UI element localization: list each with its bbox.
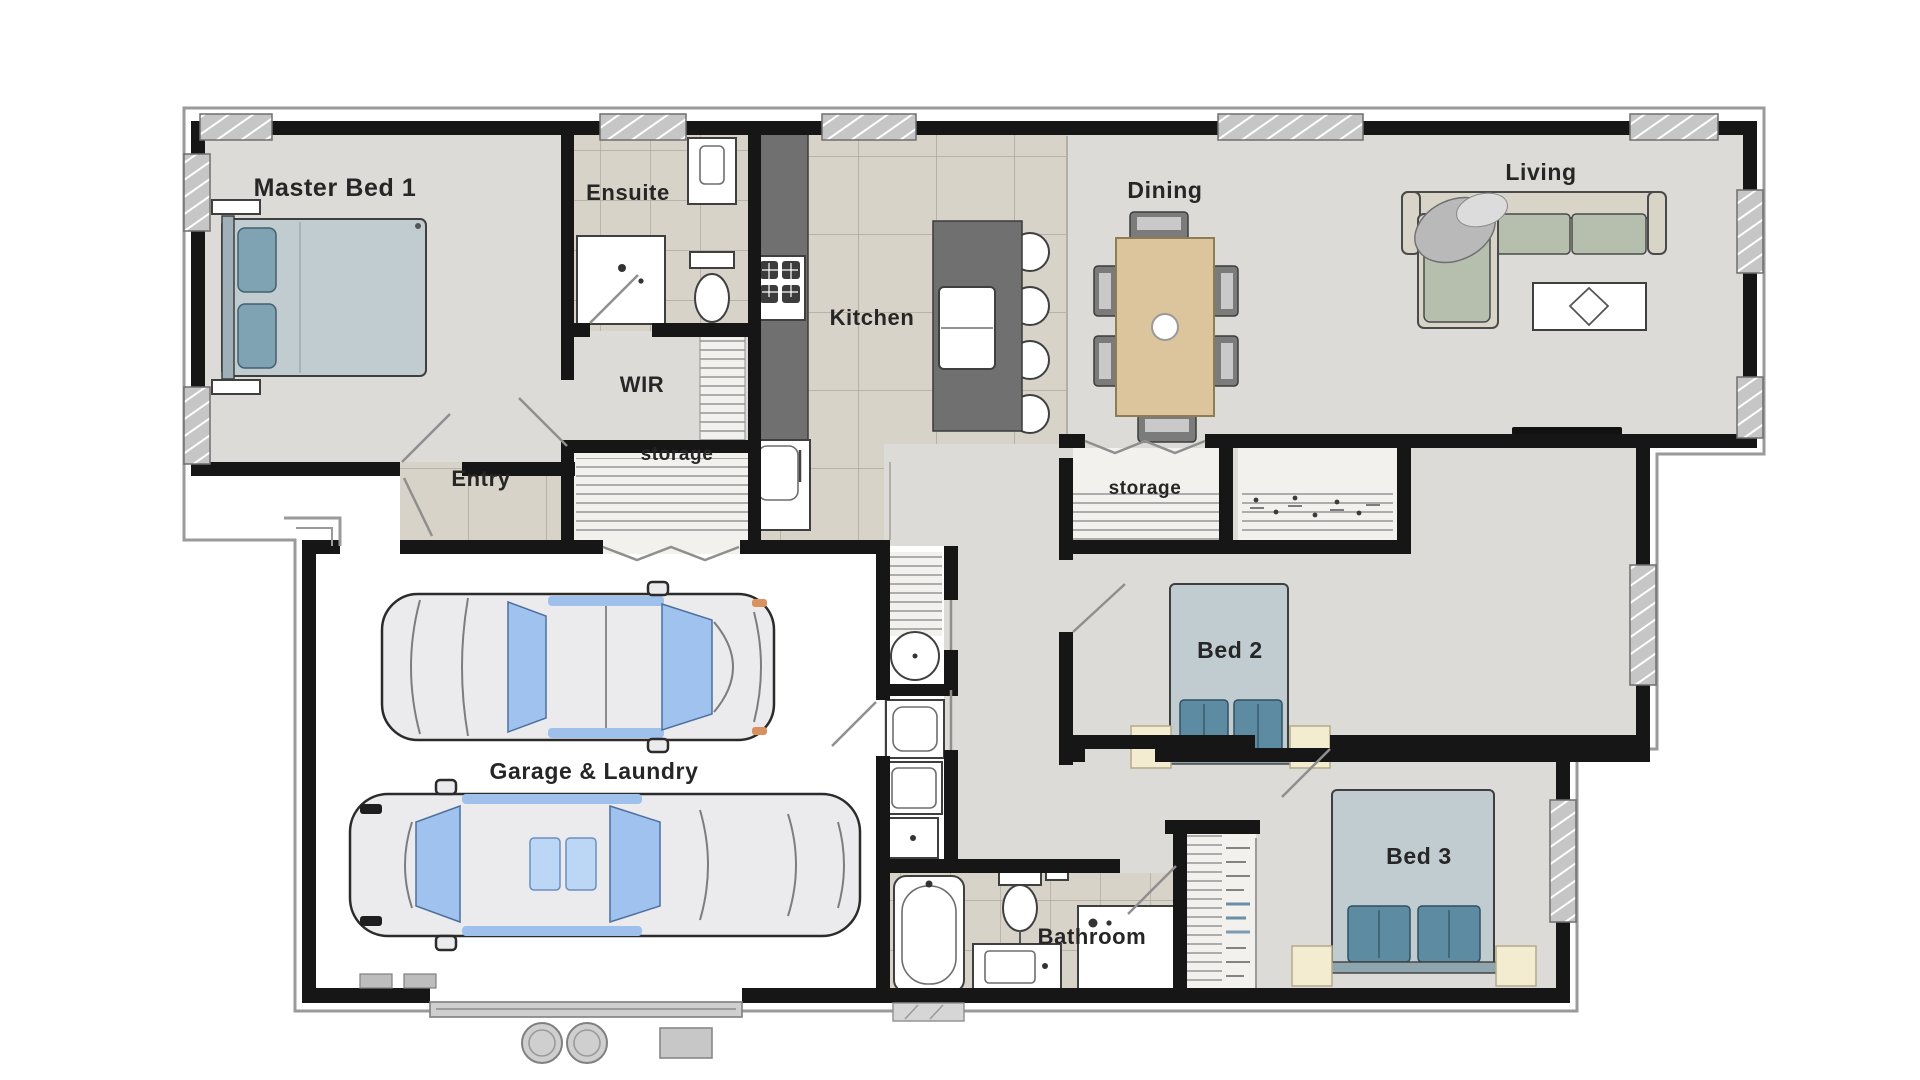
window-icon — [1550, 800, 1576, 922]
car1-side-window-bottom — [548, 728, 664, 738]
bed3-nightstand-left — [1292, 946, 1332, 986]
dining-label: Dining — [1127, 177, 1202, 203]
sofa-arm-right — [1648, 192, 1666, 254]
bed3-headboard — [1328, 962, 1498, 973]
window-icon — [1737, 190, 1763, 273]
sofa-cushion — [1496, 214, 1570, 254]
master-bed-label: Master Bed 1 — [254, 174, 417, 202]
car-top-icon-2 — [350, 780, 860, 950]
master-bed-pillow-2 — [238, 304, 276, 368]
master-bed-corner-dot — [415, 223, 421, 229]
coat-closet-shelves — [1242, 487, 1393, 538]
car2-rear-window — [610, 806, 660, 922]
living-label: Living — [1505, 159, 1576, 185]
car2-headlight-bottom — [360, 916, 382, 926]
entry-label: Entry — [451, 466, 510, 491]
window-icon — [822, 114, 916, 140]
toilet-icon — [695, 274, 729, 322]
window-icon — [184, 154, 210, 231]
car2-mirror-bottom — [436, 936, 456, 950]
coat-closet — [1238, 448, 1397, 540]
toilet-tank — [690, 252, 734, 268]
ensuite-label: Ensuite — [586, 180, 670, 205]
vanity-icon — [577, 236, 665, 324]
window-icon — [1630, 114, 1718, 140]
bed2-label: Bed 2 — [1197, 637, 1263, 663]
car1-mirror-top — [648, 582, 668, 595]
car1-mirror-bottom — [648, 739, 668, 752]
bathroom-label: Bathroom — [1038, 924, 1147, 949]
master-bed-shelf-top — [212, 200, 260, 214]
garage-door-post — [360, 974, 392, 988]
utility-box-icon — [660, 1028, 712, 1058]
laundry-unit-dot — [910, 835, 916, 841]
car2-mirror-top — [436, 780, 456, 794]
car2-side-window-bottom — [462, 926, 642, 936]
bed3-wardrobe-shelves — [1187, 834, 1222, 988]
storage-hall-label: storage — [641, 444, 714, 465]
vanity-drain-dot — [638, 278, 643, 283]
floor-plan-drawing: Master Bed 1 Ensuite WIR Kitchen Dining … — [0, 0, 1920, 1080]
car2-sunroof-2 — [566, 838, 596, 890]
window-icon — [1218, 114, 1363, 140]
bathtub-tap — [926, 881, 933, 888]
floor-plan-page: Master Bed 1 Ensuite WIR Kitchen Dining … — [0, 0, 1920, 1080]
wir-label: WIR — [620, 372, 665, 397]
car2-windshield — [416, 806, 460, 922]
toilet-icon-2 — [1003, 885, 1037, 931]
back-door-step — [893, 1003, 964, 1021]
vanity-faucet-dot — [618, 264, 626, 272]
laundry-fixtures — [886, 700, 944, 858]
car1-rear-window — [508, 602, 546, 732]
storage-wing-label: storage — [1109, 478, 1182, 499]
vanity-faucet-dot-2 — [1042, 963, 1048, 969]
window-icon — [200, 114, 272, 140]
window-icon — [1737, 377, 1763, 438]
window-icon — [1630, 565, 1656, 685]
car2-side-window-top — [462, 794, 642, 804]
window-icon — [184, 387, 210, 464]
wheelie-bin-icon — [522, 1023, 562, 1063]
coffee-table-icon — [1533, 283, 1646, 330]
shower-icon — [688, 138, 736, 204]
garage-laundry-label: Garage & Laundry — [490, 758, 699, 784]
window-icon — [600, 114, 686, 140]
bed3-nightstand-right — [1496, 946, 1536, 986]
car-top-icon — [382, 582, 774, 752]
bathtub-icon — [894, 876, 964, 992]
storage-hall-shelves — [576, 458, 748, 538]
master-bed-headboard — [222, 216, 234, 379]
wir-wardrobe-shelves — [700, 336, 745, 440]
garage-door-post — [404, 974, 436, 988]
sofa-cushion — [1572, 214, 1646, 254]
kitchen-label: Kitchen — [830, 305, 915, 330]
hwc-shelves — [884, 552, 942, 636]
hwc-closet — [884, 552, 942, 680]
car2-headlight-top — [360, 804, 382, 814]
car1-headlight-top — [752, 599, 767, 607]
car1-side-window-top — [548, 596, 664, 606]
master-bed-pillow-1 — [238, 228, 276, 292]
car2-sunroof-1 — [530, 838, 560, 890]
wheelie-bin-icon — [567, 1023, 607, 1063]
laundry-tub-icon — [886, 700, 944, 758]
bed3-label: Bed 3 — [1386, 843, 1452, 869]
dining-table-centerpiece — [1152, 314, 1178, 340]
bed3-wardrobe — [1187, 834, 1256, 990]
car1-windshield — [662, 604, 712, 730]
master-bed-shelf-bottom — [212, 380, 260, 394]
hwc-dot — [913, 654, 918, 659]
car1-body — [382, 594, 774, 740]
master-bed-icon — [212, 200, 426, 394]
car1-headlight-bottom — [752, 727, 767, 735]
